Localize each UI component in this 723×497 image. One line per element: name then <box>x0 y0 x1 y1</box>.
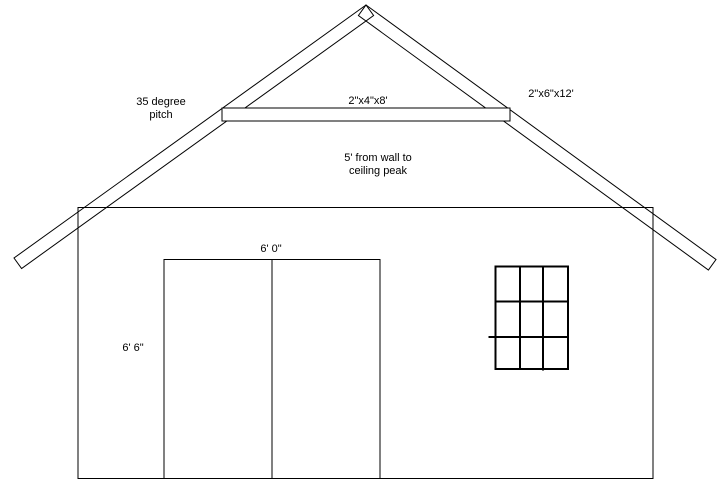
door-height-label: 6' 6" <box>122 342 143 354</box>
framing-diagram: 35 degree pitch 2"x4"x8' 2"x6"x12' 5' fr… <box>0 0 723 497</box>
right-rafter <box>358 5 716 270</box>
collar-tie-size-label: 2"x4"x8' <box>348 95 387 107</box>
left-rafter <box>14 5 374 269</box>
rafter-size-label: 2"x6"x12' <box>528 88 573 100</box>
peak-height-label-line1: 5' from wall to <box>344 152 412 164</box>
pitch-label-line1: 35 degree <box>136 96 186 108</box>
pitch-label-line2: pitch <box>149 109 172 121</box>
drawing-canvas: 35 degree pitch 2"x4"x8' 2"x6"x12' 5' fr… <box>0 0 723 497</box>
door-width-label: 6' 0" <box>260 243 281 255</box>
window-frame <box>496 267 569 370</box>
collar-tie <box>222 108 510 121</box>
peak-height-label-line2: ceiling peak <box>349 165 408 177</box>
